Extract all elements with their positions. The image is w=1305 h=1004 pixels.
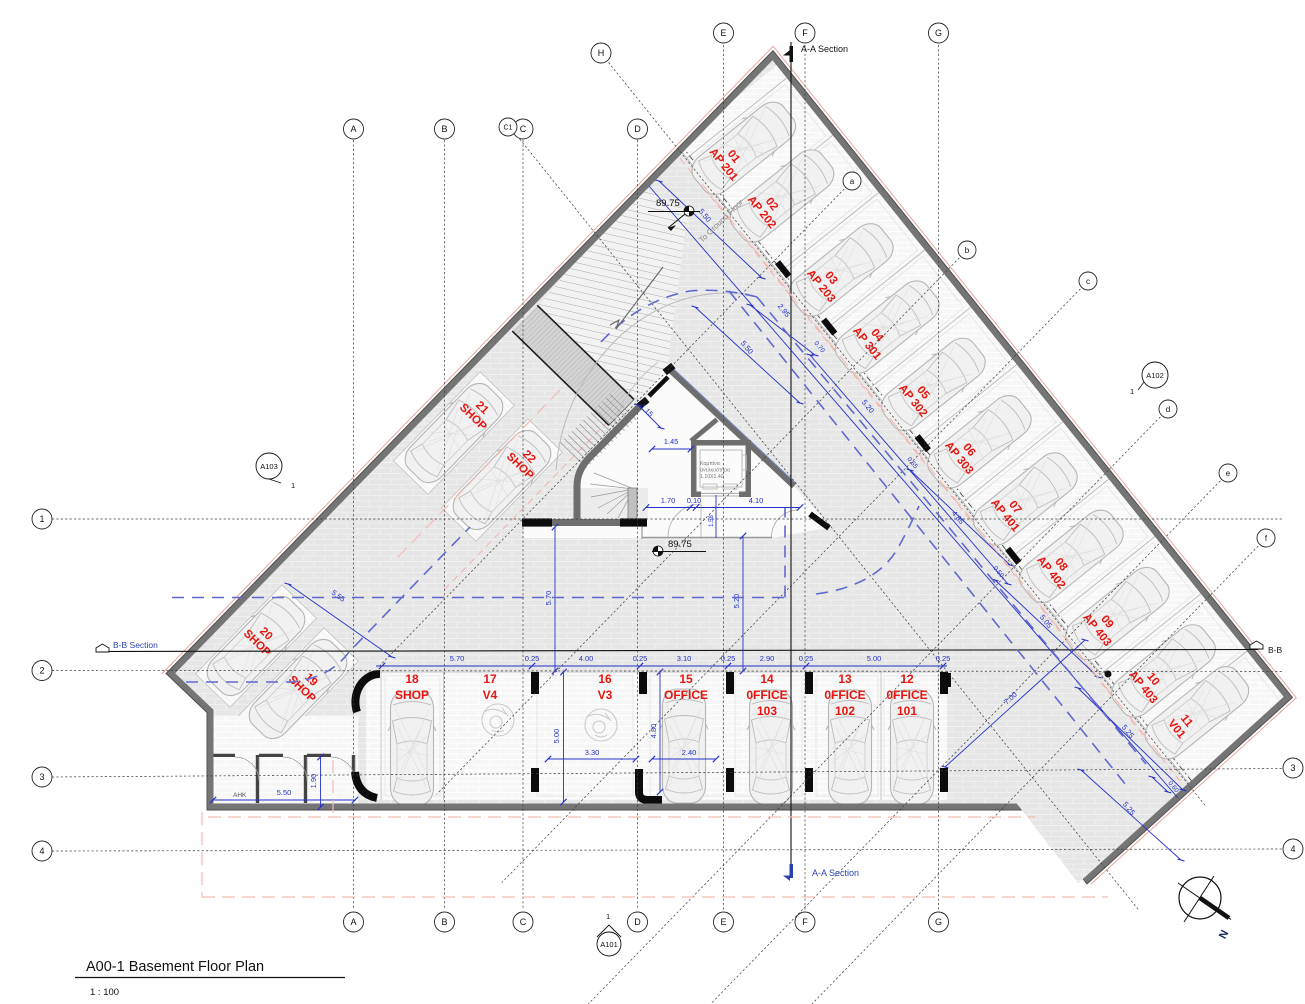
svg-text:E: E xyxy=(720,28,726,38)
svg-text:0.25: 0.25 xyxy=(525,654,540,663)
svg-text:2.40: 2.40 xyxy=(682,748,697,757)
svg-text:d: d xyxy=(1166,405,1170,414)
svg-text:1.45: 1.45 xyxy=(664,437,679,446)
svg-text:4.10: 4.10 xyxy=(749,496,764,505)
svg-text:D: D xyxy=(634,124,641,134)
svg-text:e: e xyxy=(1226,469,1231,478)
svg-text:1: 1 xyxy=(291,481,295,490)
svg-text:E: E xyxy=(720,917,726,927)
svg-text:1.70: 1.70 xyxy=(661,496,676,505)
svg-text:A101: A101 xyxy=(600,940,618,949)
svg-text:1: 1 xyxy=(606,912,610,921)
svg-text:1 : 100: 1 : 100 xyxy=(90,987,119,998)
svg-text:B-B Section: B-B Section xyxy=(113,640,158,650)
svg-text:0FFICE: 0FFICE xyxy=(746,688,787,702)
svg-text:1.90: 1.90 xyxy=(309,774,318,789)
svg-text:3.10: 3.10 xyxy=(677,654,692,663)
svg-text:14: 14 xyxy=(760,672,774,686)
svg-text:1.10X1.40: 1.10X1.40 xyxy=(700,474,724,480)
svg-text:C: C xyxy=(520,917,527,927)
svg-text:4: 4 xyxy=(1290,844,1295,854)
svg-text:2: 2 xyxy=(39,666,44,676)
svg-text:18: 18 xyxy=(405,672,419,686)
svg-text:C: C xyxy=(520,124,527,134)
svg-text:5.50: 5.50 xyxy=(277,788,292,797)
svg-text:G: G xyxy=(935,917,942,927)
svg-text:0.25: 0.25 xyxy=(633,654,648,663)
svg-text:5.00: 5.00 xyxy=(867,654,882,663)
svg-text:4.00: 4.00 xyxy=(579,654,594,663)
svg-text:F: F xyxy=(802,28,808,38)
svg-text:A: A xyxy=(350,124,356,134)
svg-text:V3: V3 xyxy=(598,688,613,702)
svg-text:c: c xyxy=(1086,277,1090,286)
svg-text:a: a xyxy=(850,177,855,186)
svg-text:4: 4 xyxy=(39,846,44,856)
svg-text:A-A Section: A-A Section xyxy=(801,44,848,54)
svg-text:0.25: 0.25 xyxy=(721,654,736,663)
svg-text:89.75: 89.75 xyxy=(656,198,680,209)
svg-text:F: F xyxy=(802,917,808,927)
svg-text:4.80: 4.80 xyxy=(649,724,658,739)
svg-text:0.25: 0.25 xyxy=(799,654,814,663)
svg-text:5.20: 5.20 xyxy=(732,594,741,609)
svg-text:A102: A102 xyxy=(1146,371,1164,380)
svg-text:AHK: AHK xyxy=(233,792,247,799)
svg-text:5.00: 5.00 xyxy=(552,729,561,744)
svg-text:102: 102 xyxy=(835,704,855,718)
svg-text:D: D xyxy=(634,917,641,927)
svg-text:3: 3 xyxy=(39,772,44,782)
svg-text:B: B xyxy=(441,917,447,927)
svg-text:12: 12 xyxy=(900,672,914,686)
svg-text:0.25: 0.25 xyxy=(936,654,951,663)
svg-text:B: B xyxy=(441,124,447,134)
svg-text:V4: V4 xyxy=(483,688,498,702)
svg-text:A103: A103 xyxy=(260,462,278,471)
svg-text:17: 17 xyxy=(483,672,497,686)
svg-text:3.30: 3.30 xyxy=(585,748,600,757)
svg-text:H: H xyxy=(598,48,605,58)
svg-text:89.75: 89.75 xyxy=(668,539,692,550)
svg-text:101: 101 xyxy=(897,704,917,718)
svg-text:ανελκυστήρα: ανελκυστήρα xyxy=(700,467,730,474)
svg-text:C1: C1 xyxy=(504,125,513,132)
svg-text:B-B: B-B xyxy=(1268,645,1283,655)
svg-text:1: 1 xyxy=(39,514,44,524)
svg-text:G: G xyxy=(935,28,942,38)
svg-text:0FFICE: 0FFICE xyxy=(824,688,865,702)
svg-text:b: b xyxy=(965,246,970,255)
svg-text:1.58: 1.58 xyxy=(709,515,715,527)
svg-text:2.90: 2.90 xyxy=(760,654,775,663)
svg-text:OFFICE: OFFICE xyxy=(664,688,708,702)
svg-text:SHOP: SHOP xyxy=(395,688,429,702)
svg-text:A00-1 Basement Floor Plan: A00-1 Basement Floor Plan xyxy=(86,959,264,975)
svg-text:103: 103 xyxy=(757,704,777,718)
svg-text:A: A xyxy=(350,917,356,927)
svg-text:5.70: 5.70 xyxy=(450,654,465,663)
svg-text:0.10: 0.10 xyxy=(687,496,702,505)
svg-text:16: 16 xyxy=(598,672,612,686)
svg-text:13: 13 xyxy=(838,672,852,686)
svg-text:0FFICE: 0FFICE xyxy=(886,688,927,702)
svg-text:1: 1 xyxy=(1130,387,1134,396)
svg-text:5.70: 5.70 xyxy=(544,591,553,606)
svg-text:Καμπίνα: Καμπίνα xyxy=(700,461,720,467)
svg-text:15: 15 xyxy=(679,672,693,686)
svg-text:3: 3 xyxy=(1290,763,1295,773)
svg-text:A-A Section: A-A Section xyxy=(812,868,859,878)
